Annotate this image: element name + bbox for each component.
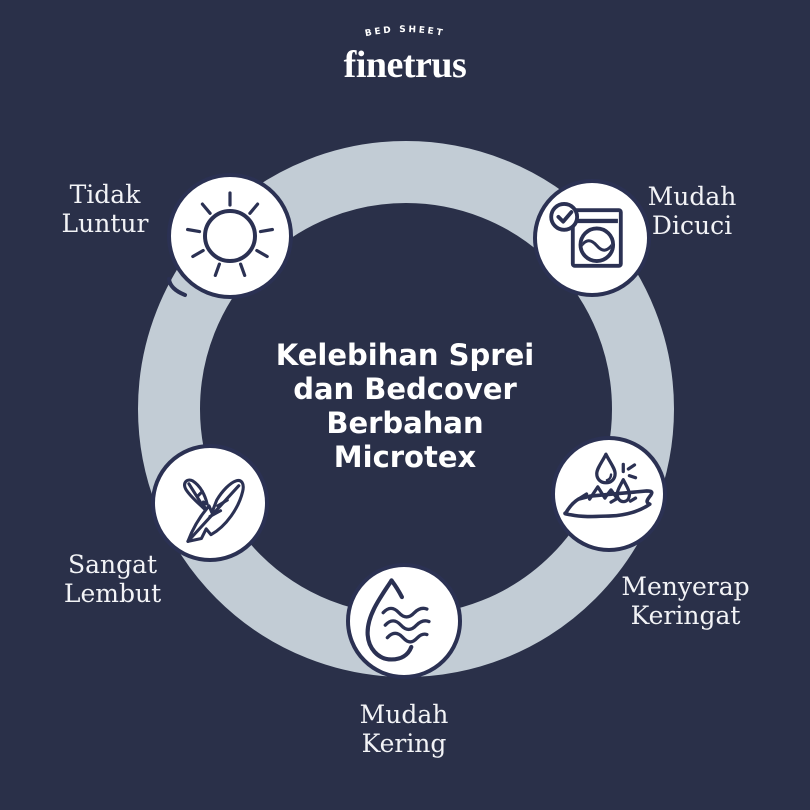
- drying-drop-icon: [352, 569, 456, 673]
- center-title: Kelebihan Sprei dan Bedcover Berbahan Mi…: [235, 338, 575, 474]
- brand-logo: BED SHEET finetrus: [0, 16, 810, 82]
- sun-icon: [180, 186, 280, 286]
- center-title-line: Berbahan: [235, 406, 575, 440]
- benefit-label-mudah-dicuci: Mudah Dicuci: [612, 182, 772, 240]
- logo-tagline: BED SHEET: [364, 25, 446, 39]
- benefit-label-mudah-kering: Mudah Kering: [324, 700, 484, 758]
- benefit-circle-tidak-luntur: [167, 173, 293, 299]
- label-line: Lembut: [30, 579, 195, 608]
- label-line: Keringat: [598, 601, 773, 630]
- label-line: Menyerap: [598, 572, 773, 601]
- label-line: Kering: [324, 729, 484, 758]
- brand-name: finetrus: [0, 48, 810, 82]
- label-line: Tidak: [25, 180, 185, 209]
- benefit-label-tidak-luntur: Tidak Luntur: [25, 180, 185, 238]
- label-line: Mudah: [612, 182, 772, 211]
- label-line: Sangat: [30, 550, 195, 579]
- center-title-line: dan Bedcover: [235, 372, 575, 406]
- benefit-circle-mudah-kering: [346, 563, 462, 679]
- benefit-label-sangat-lembut: Sangat Lembut: [30, 550, 195, 608]
- center-title-line: Microtex: [235, 440, 575, 474]
- center-title-line: Kelebihan Sprei: [235, 338, 575, 372]
- label-line: Luntur: [25, 209, 185, 238]
- label-line: Mudah: [324, 700, 484, 729]
- benefit-label-menyerap-keringat: Menyerap Keringat: [598, 572, 773, 630]
- label-line: Dicuci: [612, 211, 772, 240]
